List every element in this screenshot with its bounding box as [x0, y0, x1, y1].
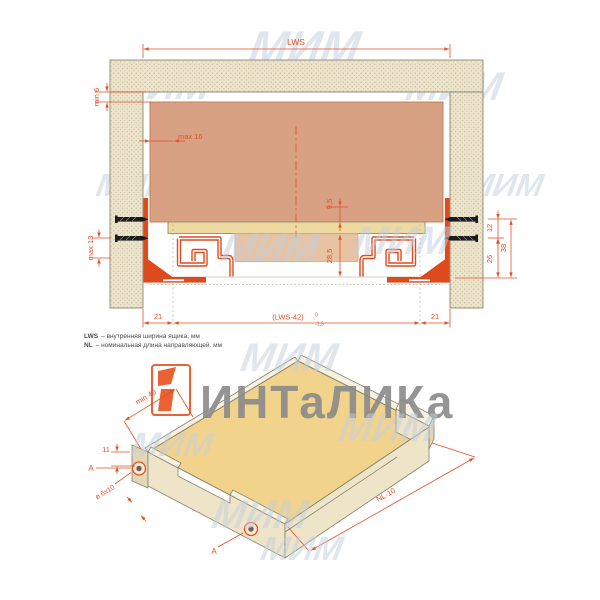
dim-hole-label: ø 6x10: [94, 484, 116, 501]
dim-max13-label: max 13: [86, 236, 95, 261]
dim-min6-label: min 6: [92, 88, 101, 106]
detail-a-label-1: A: [88, 464, 94, 473]
slide-bracket: [144, 198, 149, 262]
legend-line-nl: NL– номинальная длина направляющей, мм: [84, 341, 223, 349]
dim-9-5-label: 9,5: [325, 199, 334, 209]
dim-28-5-label: 28,5: [325, 249, 334, 264]
dim-21-right-label: 21: [431, 312, 439, 321]
legend-term-nl: NL: [84, 342, 93, 349]
cabinet-left-panel: [110, 92, 143, 308]
dim-min40-label: min 40: [134, 387, 158, 406]
dim-38-label: 38: [499, 244, 508, 252]
mim-watermark: МИМ: [258, 530, 347, 568]
brand-logo-i-stem: [158, 389, 174, 411]
mim-watermark: МИМ: [351, 218, 456, 263]
mim-watermark: МИМ: [219, 225, 324, 270]
mim-watermark: МИМ: [336, 405, 441, 450]
slide-flange-slot: [163, 279, 184, 281]
brand-logo-i-flag: [158, 367, 176, 386]
legend-desc-nl: – номинальная длина направляющей, мм: [96, 341, 223, 349]
dim-max16-label: max 16: [178, 132, 203, 141]
dim-lws-label: LWS: [287, 37, 305, 47]
dim-lws42-label: (LWS-42): [272, 313, 304, 322]
drawer-back-panel: [150, 102, 443, 222]
dim-26-label: 26: [485, 255, 494, 263]
dim-12-label: 12: [485, 224, 494, 232]
dim-lws42-tolerance-lower: -1,5: [315, 322, 324, 328]
hole-dowel: [136, 466, 141, 471]
catalog-drawing-page: МИМ МИМ МИМ МИМ МИМ: [0, 0, 600, 600]
cabinet-right-panel: [450, 92, 483, 308]
legend-desc-lws: – внутренняя ширина ящика, мм: [101, 333, 200, 340]
legend-line-lws: LWS– внутренняя ширина ящика, мм: [84, 333, 200, 340]
cabinet-top-panel: [110, 60, 483, 92]
mim-watermark: МИМ: [128, 426, 217, 464]
dim-21-left-label: 21: [154, 312, 162, 321]
dim-11-label: 11: [102, 445, 110, 454]
legend-term-lws: LWS: [84, 333, 99, 340]
mim-watermark: МИМ: [238, 335, 343, 380]
technical-drawing: МИМ МИМ МИМ МИМ МИМ: [0, 0, 600, 600]
detail-a-label-2: A: [211, 547, 217, 556]
dim-lws42-tolerance-upper: 0: [315, 313, 318, 319]
legend: LWS– внутренняя ширина ящика, мм NL– ном…: [84, 333, 223, 349]
